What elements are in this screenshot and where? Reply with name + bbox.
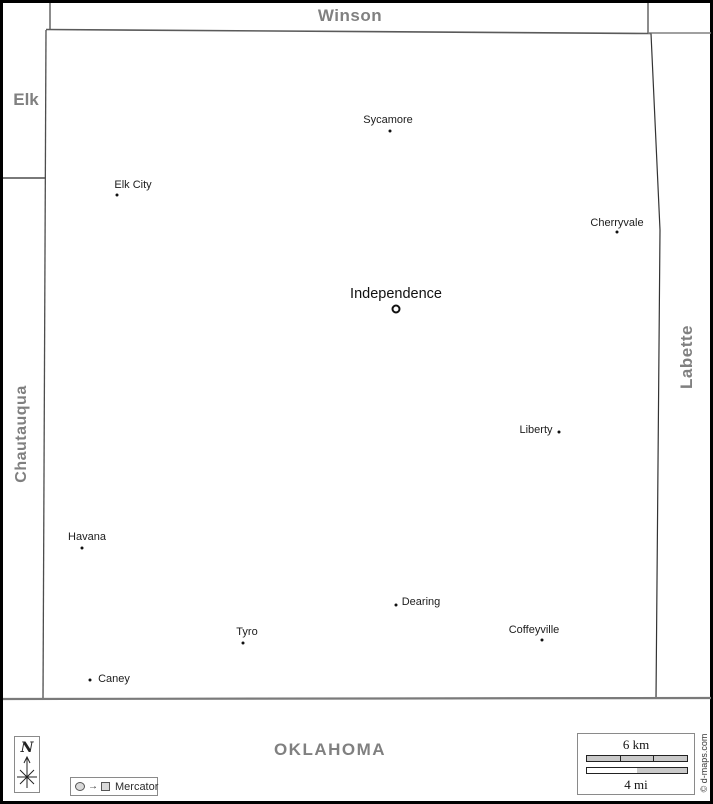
city-label-independence: Independence [350, 286, 442, 302]
scale-mi-label: 4 mi [578, 777, 694, 793]
city-dot-elk-city [116, 194, 119, 197]
projection-name: Mercator [115, 781, 158, 793]
neighbor-label-labette: Labette [677, 325, 697, 389]
neighbor-label-oklahoma: OKLAHOMA [274, 740, 386, 760]
scale-km-label: 6 km [578, 737, 694, 753]
city-label-dearing: Dearing [402, 596, 441, 608]
scale-mi-bar [586, 767, 688, 774]
compass-rose: N [14, 736, 40, 793]
city-dot-tyro [242, 642, 245, 645]
arrow-right-icon: → [88, 782, 98, 792]
city-label-havana: Havana [68, 531, 106, 543]
scale-km-bar [586, 755, 688, 762]
city-dot-caney [89, 679, 92, 682]
neighbor-label-winson: Winson [318, 6, 382, 26]
city-dot-liberty [558, 431, 561, 434]
county-seat-marker-independence [392, 305, 401, 314]
map-canvas: Winson Elk Chautauqua Labette OKLAHOMA S… [0, 0, 713, 804]
city-label-liberty: Liberty [519, 424, 552, 436]
city-label-caney: Caney [98, 673, 130, 685]
city-dot-havana [81, 547, 84, 550]
city-label-sycamore: Sycamore [363, 114, 413, 126]
city-dot-coffeyville [541, 639, 544, 642]
neighbor-label-chautauqua: Chautauqua [13, 385, 31, 482]
projected-square-icon [101, 782, 110, 791]
scale-bar-box: 6 km 4 mi [577, 733, 695, 795]
copyright-credit: © d-maps.com [699, 734, 709, 793]
city-dot-cherryvale [616, 231, 619, 234]
km-bar-tick [653, 756, 654, 761]
city-label-elk-city: Elk City [114, 179, 151, 191]
mi-bar-segment [637, 768, 687, 773]
north-letter: N [20, 740, 35, 756]
city-label-cherryvale: Cherryvale [590, 217, 643, 229]
city-label-tyro: Tyro [236, 626, 257, 638]
globe-ellipse-icon [75, 782, 85, 791]
projection-legend: → Mercator [70, 777, 158, 796]
neighbor-label-elk: Elk [13, 90, 39, 110]
city-label-coffeyville: Coffeyville [509, 624, 560, 636]
km-bar-tick [620, 756, 621, 761]
city-dot-dearing [395, 604, 398, 607]
city-dot-sycamore [389, 130, 392, 133]
